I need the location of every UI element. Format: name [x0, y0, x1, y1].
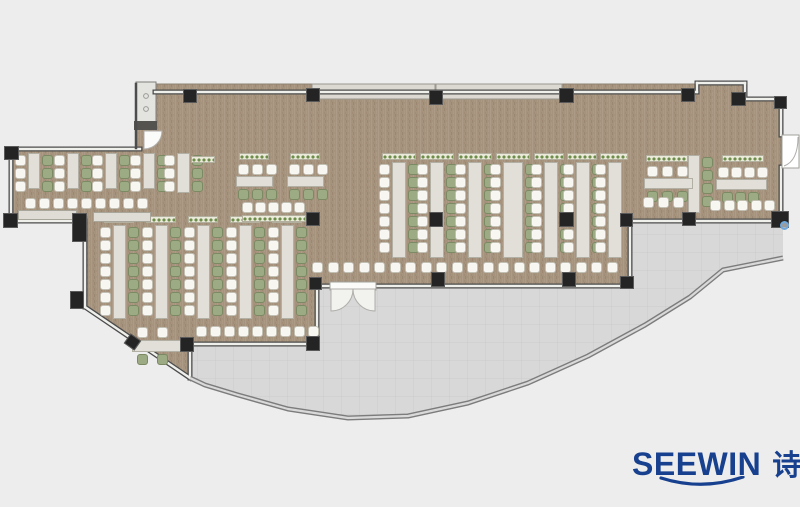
structural-column — [3, 213, 18, 228]
chair-green — [192, 168, 203, 179]
chair-white — [455, 203, 466, 214]
chair-white — [531, 216, 542, 227]
desk-table — [113, 225, 126, 319]
chair-white — [184, 305, 195, 316]
chair-green — [254, 240, 265, 251]
chair-white — [757, 167, 768, 178]
chair-white — [595, 177, 606, 188]
chair-white — [266, 164, 277, 175]
logo-chinese-text: 诗敏 — [772, 450, 800, 482]
chair-white — [252, 164, 263, 175]
chair-white — [294, 202, 305, 213]
chair-white — [595, 216, 606, 227]
chair-white — [81, 198, 92, 209]
chair-white — [673, 197, 684, 208]
chair-white — [417, 190, 428, 201]
structural-column — [682, 212, 696, 226]
chair-white — [294, 326, 305, 337]
chair-white — [531, 164, 542, 175]
chair-white — [303, 164, 314, 175]
chair-green — [254, 266, 265, 277]
chair-white — [92, 181, 103, 192]
chair-white — [379, 229, 390, 240]
chair-white — [455, 216, 466, 227]
chair-white — [563, 164, 574, 175]
chair-green — [212, 305, 223, 316]
structural-column — [306, 336, 320, 351]
chair-white — [417, 164, 428, 175]
chair-green — [702, 157, 713, 168]
chair-white — [529, 262, 540, 273]
chair-green — [266, 189, 277, 200]
chair-white — [184, 253, 195, 264]
chair-green — [254, 227, 265, 238]
chair-white — [514, 262, 525, 273]
chair-white — [744, 167, 755, 178]
furniture-layer — [0, 0, 800, 507]
chair-green — [212, 279, 223, 290]
chair-white — [15, 168, 26, 179]
planter-strip — [242, 215, 306, 222]
chair-green — [254, 305, 265, 316]
chair-green — [119, 168, 130, 179]
chair-white — [545, 262, 556, 273]
desk-table — [544, 162, 558, 258]
chair-green — [81, 168, 92, 179]
chair-white — [490, 242, 501, 253]
chair-green — [254, 279, 265, 290]
window-bench — [93, 212, 151, 222]
chair-green — [212, 240, 223, 251]
chair-green — [238, 189, 249, 200]
planter-strip — [382, 153, 416, 160]
chair-white — [718, 167, 729, 178]
desk-table — [155, 225, 168, 319]
chair-white — [417, 242, 428, 253]
planter-strip — [534, 153, 564, 160]
chair-white — [662, 166, 673, 177]
chair-green — [81, 181, 92, 192]
chair-green — [212, 227, 223, 238]
chair-white — [196, 326, 207, 337]
desk-table — [239, 225, 252, 319]
chair-white — [563, 177, 574, 188]
structural-column — [620, 213, 633, 227]
chair-white — [142, 266, 153, 277]
chair-white — [184, 292, 195, 303]
chair-green — [212, 266, 223, 277]
chair-green — [296, 266, 307, 277]
chair-green — [702, 183, 713, 194]
chair-white — [25, 198, 36, 209]
chair-white — [595, 190, 606, 201]
chair-white — [490, 216, 501, 227]
chair-white — [374, 262, 385, 273]
chair-white — [266, 326, 277, 337]
chair-white — [405, 262, 416, 273]
desk-table — [608, 162, 622, 258]
planter-strip — [458, 153, 492, 160]
chair-white — [252, 326, 263, 337]
chair-white — [142, 227, 153, 238]
structural-column — [4, 146, 19, 160]
structural-column — [309, 277, 322, 290]
chair-green — [170, 292, 181, 303]
desk-table — [392, 162, 406, 258]
chair-white — [359, 262, 370, 273]
chair-green — [303, 189, 314, 200]
chair-white — [751, 200, 762, 211]
chair-white — [95, 198, 106, 209]
desk-table — [430, 162, 444, 258]
planter-strip — [239, 153, 269, 160]
structural-column — [774, 96, 787, 109]
chair-white — [137, 327, 148, 338]
desk-table — [177, 153, 190, 193]
chair-white — [607, 262, 618, 273]
chair-white — [595, 229, 606, 240]
chair-white — [483, 262, 494, 273]
desk-table — [236, 176, 273, 187]
chair-white — [137, 198, 148, 209]
chair-white — [226, 266, 237, 277]
chair-green — [128, 227, 139, 238]
desk-table — [67, 153, 79, 189]
snap-marker-icon — [780, 221, 789, 230]
structural-column — [306, 212, 320, 226]
desk-table — [281, 225, 294, 319]
chair-white — [531, 190, 542, 201]
chair-green — [702, 170, 713, 181]
structural-column — [559, 212, 574, 227]
floor-plan: SEEWIN诗敏 — [0, 0, 800, 507]
chair-green — [137, 354, 148, 365]
chair-white — [184, 266, 195, 277]
chair-white — [563, 190, 574, 201]
chair-white — [268, 279, 279, 290]
chair-white — [289, 164, 300, 175]
logo-swoosh-icon — [659, 476, 745, 489]
chair-white — [100, 253, 111, 264]
structural-column — [306, 88, 320, 102]
chair-white — [379, 190, 390, 201]
chair-green — [317, 189, 328, 200]
chair-white — [92, 168, 103, 179]
chair-green — [170, 253, 181, 264]
seewin-logo: SEEWIN诗敏 — [632, 442, 800, 484]
chair-white — [268, 292, 279, 303]
chair-white — [226, 292, 237, 303]
chair-white — [142, 253, 153, 264]
chair-white — [417, 216, 428, 227]
chair-white — [490, 177, 501, 188]
chair-green — [170, 266, 181, 277]
chair-white — [328, 262, 339, 273]
chair-green — [170, 227, 181, 238]
structural-column — [429, 90, 443, 105]
chair-white — [531, 203, 542, 214]
chair-green — [296, 253, 307, 264]
chair-green — [254, 253, 265, 264]
chair-white — [184, 240, 195, 251]
chair-green — [192, 181, 203, 192]
chair-green — [157, 354, 168, 365]
chair-white — [455, 190, 466, 201]
chair-white — [226, 240, 237, 251]
chair-white — [764, 200, 775, 211]
chair-white — [490, 164, 501, 175]
desk-table — [287, 176, 324, 187]
planter-strip — [567, 153, 597, 160]
planter-strip — [600, 153, 628, 160]
structural-column — [681, 88, 695, 102]
chair-white — [226, 279, 237, 290]
planter-strip — [191, 156, 215, 163]
chair-white — [417, 203, 428, 214]
chair-green — [128, 266, 139, 277]
structural-column — [183, 89, 197, 103]
chair-white — [130, 155, 141, 166]
chair-white — [379, 177, 390, 188]
chair-white — [142, 292, 153, 303]
chair-white — [455, 242, 466, 253]
chair-white — [268, 305, 279, 316]
chair-white — [452, 262, 463, 273]
chair-green — [42, 181, 53, 192]
chair-white — [238, 326, 249, 337]
chair-white — [312, 262, 323, 273]
desk-table — [143, 153, 155, 189]
desk-table — [105, 153, 117, 189]
chair-green — [42, 168, 53, 179]
chair-white — [531, 242, 542, 253]
chair-white — [164, 155, 175, 166]
chair-white — [455, 164, 466, 175]
chair-green — [128, 305, 139, 316]
structural-column — [180, 337, 194, 352]
chair-white — [268, 240, 279, 251]
chair-white — [417, 177, 428, 188]
planter-strip — [496, 153, 530, 160]
chair-white — [595, 242, 606, 253]
chair-white — [576, 262, 587, 273]
chair-white — [317, 164, 328, 175]
chair-white — [142, 279, 153, 290]
chair-green — [252, 189, 263, 200]
chair-white — [226, 305, 237, 316]
structural-column — [731, 92, 746, 106]
chair-white — [54, 181, 65, 192]
chair-green — [212, 253, 223, 264]
chair-white — [164, 168, 175, 179]
chair-white — [724, 200, 735, 211]
chair-white — [242, 202, 253, 213]
chair-white — [281, 202, 292, 213]
chair-white — [595, 203, 606, 214]
chair-green — [42, 155, 53, 166]
chair-green — [296, 240, 307, 251]
chair-white — [268, 253, 279, 264]
chair-green — [128, 253, 139, 264]
chair-white — [100, 227, 111, 238]
chair-green — [254, 292, 265, 303]
chair-white — [731, 167, 742, 178]
desk-table — [644, 178, 693, 189]
structural-column — [431, 272, 445, 287]
chair-green — [128, 292, 139, 303]
chair-green — [170, 279, 181, 290]
chair-white — [53, 198, 64, 209]
planter-strip — [420, 153, 454, 160]
chair-white — [531, 177, 542, 188]
desk-table — [503, 162, 523, 258]
chair-white — [157, 327, 168, 338]
chair-white — [142, 305, 153, 316]
chair-green — [170, 240, 181, 251]
chair-white — [100, 266, 111, 277]
chair-white — [39, 198, 50, 209]
chair-white — [164, 181, 175, 192]
chair-green — [296, 279, 307, 290]
planter-strip — [188, 216, 218, 223]
chair-white — [268, 202, 279, 213]
chair-white — [455, 229, 466, 240]
chair-white — [737, 200, 748, 211]
chair-white — [343, 262, 354, 273]
chair-white — [238, 164, 249, 175]
chair-white — [184, 227, 195, 238]
chair-white — [142, 240, 153, 251]
chair-white — [15, 181, 26, 192]
chair-green — [296, 292, 307, 303]
chair-white — [563, 229, 574, 240]
chair-white — [563, 242, 574, 253]
chair-white — [100, 292, 111, 303]
chair-white — [595, 164, 606, 175]
chair-green — [212, 292, 223, 303]
chair-white — [226, 253, 237, 264]
structural-column — [559, 88, 574, 103]
chair-white — [54, 155, 65, 166]
chair-white — [100, 305, 111, 316]
chair-white — [498, 262, 509, 273]
desk-table — [576, 162, 590, 258]
chair-white — [417, 229, 428, 240]
desk-table — [197, 225, 210, 319]
chair-white — [100, 240, 111, 251]
chair-white — [658, 197, 669, 208]
chair-white — [390, 262, 401, 273]
chair-green — [119, 155, 130, 166]
chair-white — [109, 198, 120, 209]
chair-white — [100, 279, 111, 290]
chair-white — [379, 203, 390, 214]
chair-white — [184, 279, 195, 290]
chair-green — [128, 279, 139, 290]
desk-table — [716, 179, 767, 190]
structural-column — [562, 272, 576, 287]
chair-white — [280, 326, 291, 337]
chair-green — [128, 240, 139, 251]
chair-white — [130, 181, 141, 192]
chair-white — [677, 166, 688, 177]
chair-green — [119, 181, 130, 192]
chair-white — [490, 190, 501, 201]
chair-white — [379, 216, 390, 227]
chair-white — [226, 227, 237, 238]
chair-white — [210, 326, 221, 337]
chair-white — [379, 242, 390, 253]
chair-green — [81, 155, 92, 166]
chair-white — [531, 229, 542, 240]
chair-white — [268, 266, 279, 277]
structural-column — [620, 276, 634, 289]
chair-white — [643, 197, 654, 208]
chair-green — [296, 305, 307, 316]
chair-white — [647, 166, 658, 177]
chair-white — [67, 198, 78, 209]
structural-column — [70, 291, 84, 309]
chair-white — [255, 202, 266, 213]
chair-white — [379, 164, 390, 175]
planter-strip — [646, 155, 688, 162]
chair-white — [54, 168, 65, 179]
chair-white — [591, 262, 602, 273]
desk-table — [468, 162, 482, 258]
chair-white — [490, 203, 501, 214]
chair-white — [467, 262, 478, 273]
chair-white — [490, 229, 501, 240]
chair-white — [92, 155, 103, 166]
window-bench — [18, 210, 77, 220]
structural-column — [72, 213, 87, 242]
chair-white — [224, 326, 235, 337]
chair-white — [455, 177, 466, 188]
planter-strip — [290, 153, 320, 160]
chair-green — [289, 189, 300, 200]
structural-column — [429, 212, 443, 227]
planter-strip — [722, 155, 764, 162]
chair-white — [710, 200, 721, 211]
chair-white — [130, 168, 141, 179]
chair-white — [268, 227, 279, 238]
chair-white — [421, 262, 432, 273]
chair-green — [296, 227, 307, 238]
chair-green — [170, 305, 181, 316]
chair-white — [123, 198, 134, 209]
desk-table — [28, 153, 40, 189]
